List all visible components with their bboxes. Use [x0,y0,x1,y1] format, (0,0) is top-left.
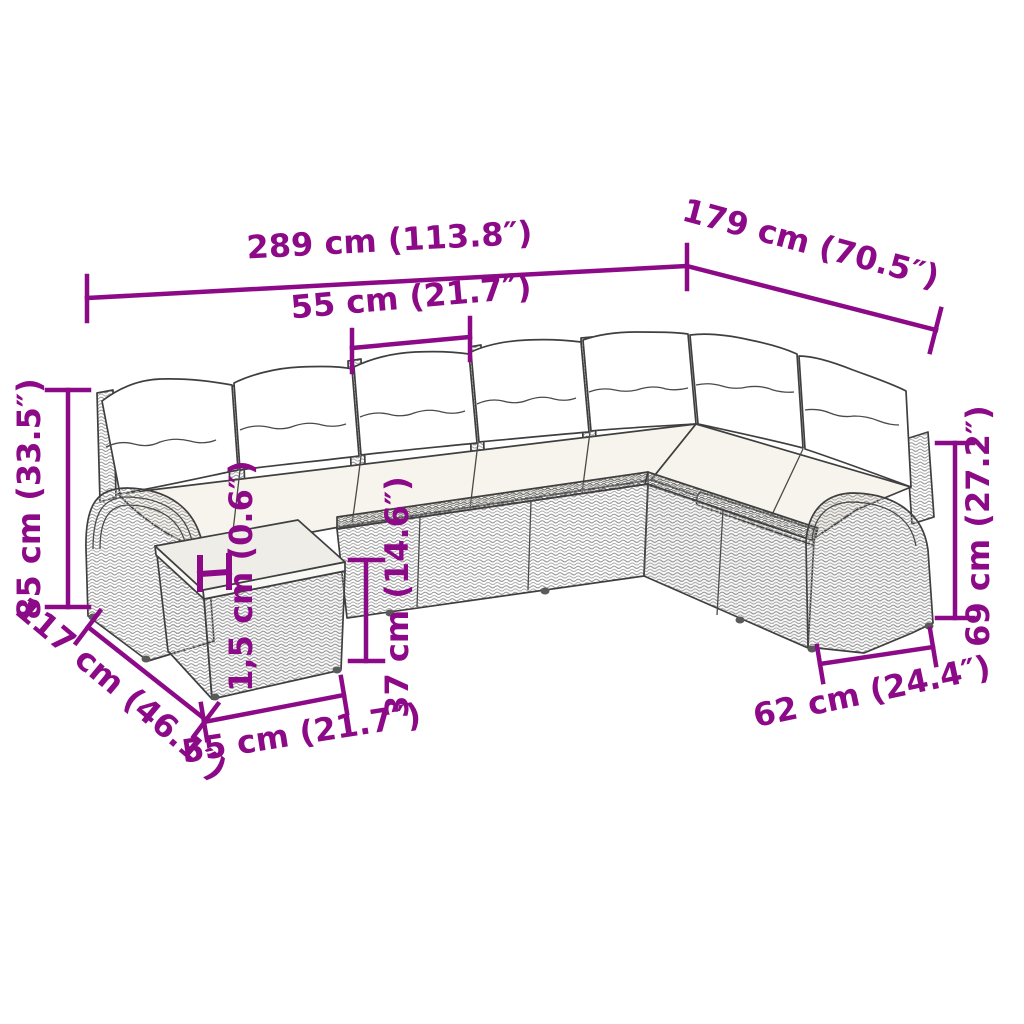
back-pillow [234,366,359,470]
dim-overall-width-label: 289 cm (113.8″) [246,214,534,267]
dim-overall-height: 85 cm (33.5″) [10,378,89,620]
dim-arm-height: 69 cm (27.2″) [937,405,997,647]
back-pillow [354,352,477,455]
dim-arm-height-label: 69 cm (27.2″) [959,405,997,647]
sofa-dimension-diagram: 289 cm (113.8″) 179 cm (70.5″) 55 cm (21… [0,0,1024,1024]
back-pillow [471,340,589,442]
back-pillow [102,379,238,494]
dim-right-depth-label: 179 cm (70.5″) [678,191,943,296]
back-pillow [583,332,696,431]
dim-table-height-label: 37 cm (14.6″) [378,476,416,718]
sofa-illustration [86,332,934,701]
dim-seat-depth-label: 62 cm (24.4″) [750,648,994,735]
dim-seat-width-label: 55 cm (21.7″) [289,268,533,327]
dim-overall-height-label: 85 cm (33.5″) [10,378,48,620]
dim-right-depth: 179 cm (70.5″) [678,191,943,352]
dim-glass-thickness-label: 1,5 cm (0.6″) [222,460,260,692]
right-armrest [806,493,933,653]
